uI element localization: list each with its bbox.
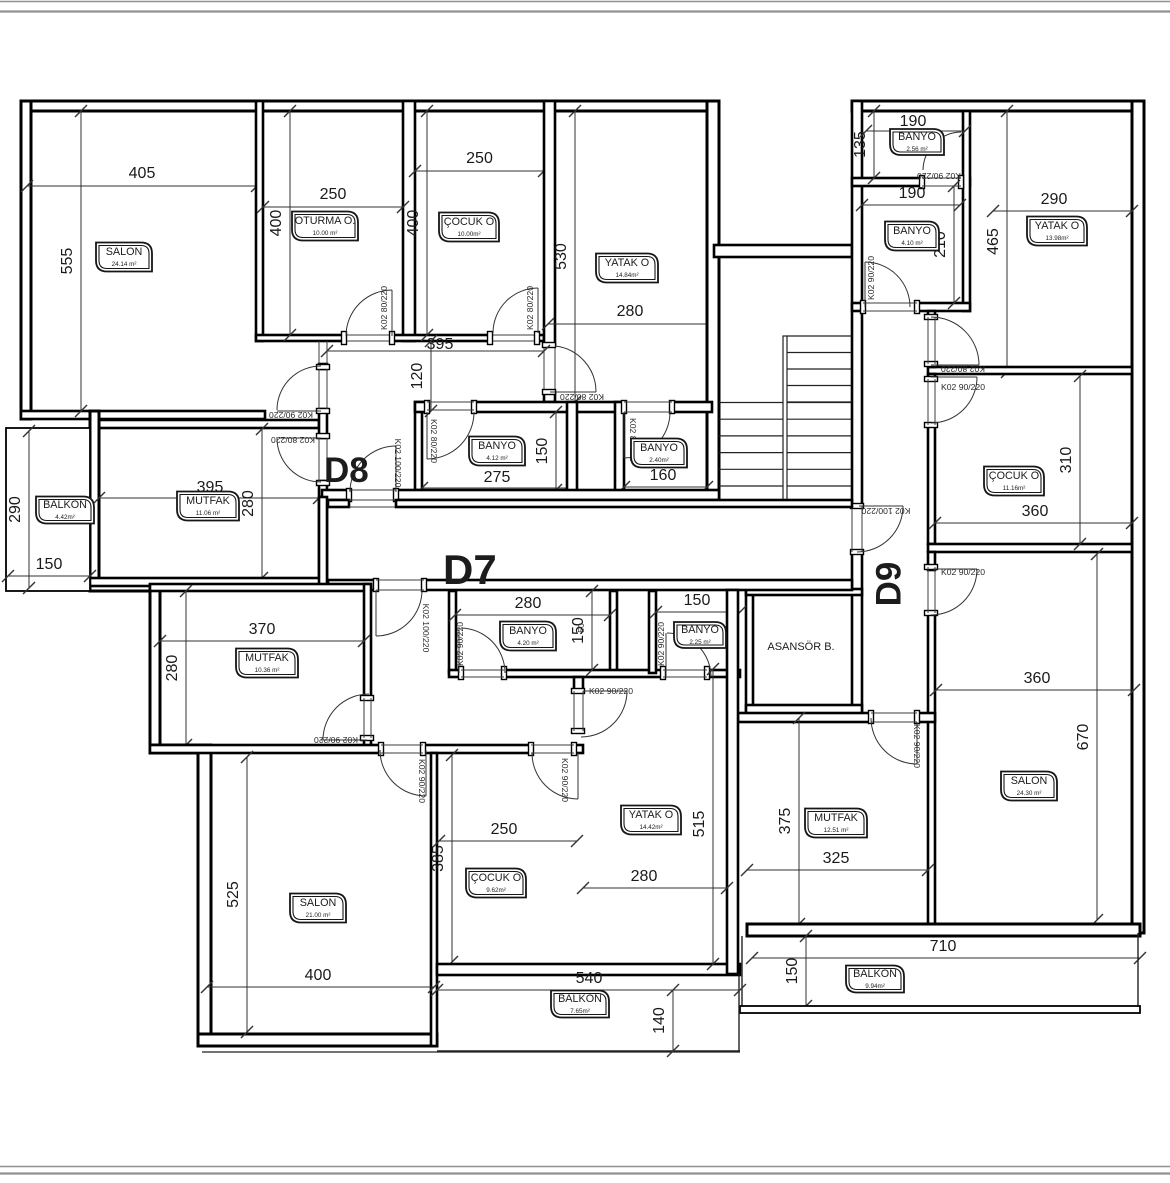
svg-text:135: 135 xyxy=(852,131,869,158)
svg-text:11.16m²: 11.16m² xyxy=(1003,485,1026,492)
svg-text:9.62m²: 9.62m² xyxy=(486,887,506,894)
svg-text:K02 90/220: K02 90/220 xyxy=(314,735,358,745)
svg-text:4.12 m²: 4.12 m² xyxy=(486,455,507,462)
svg-text:SALON: SALON xyxy=(300,897,337,909)
svg-text:160: 160 xyxy=(650,467,677,484)
svg-text:4.42m²: 4.42m² xyxy=(55,514,75,521)
svg-text:465: 465 xyxy=(985,228,1002,255)
svg-text:OTURMA O.: OTURMA O. xyxy=(295,215,356,227)
svg-text:K02 80/220: K02 80/220 xyxy=(271,435,315,445)
svg-text:50: 50 xyxy=(576,623,586,633)
svg-text:10.36 m²: 10.36 m² xyxy=(255,667,280,674)
svg-text:K02 100/220: K02 100/220 xyxy=(421,604,431,653)
svg-text:370: 370 xyxy=(249,621,276,638)
svg-text:K02 90/220: K02 90/220 xyxy=(941,567,985,577)
svg-text:400: 400 xyxy=(268,210,285,237)
svg-text:MUTFAK: MUTFAK xyxy=(814,812,859,824)
svg-text:670: 670 xyxy=(1075,724,1092,751)
svg-text:K02 90/220: K02 90/220 xyxy=(560,758,570,802)
svg-text:4.10 m²: 4.10 m² xyxy=(901,240,922,247)
svg-text:24.30 m²: 24.30 m² xyxy=(1017,790,1042,797)
svg-text:150: 150 xyxy=(684,592,711,609)
svg-text:250: 250 xyxy=(320,186,347,203)
svg-text:K02 90/220: K02 90/220 xyxy=(455,622,465,666)
svg-text:D7: D7 xyxy=(443,546,497,593)
svg-text:BALKON: BALKON xyxy=(43,499,87,511)
svg-text:7.65m²: 7.65m² xyxy=(570,1008,590,1015)
svg-text:K02 80/220: K02 80/220 xyxy=(525,286,535,330)
svg-text:400: 400 xyxy=(305,967,332,984)
svg-text:310: 310 xyxy=(1058,447,1075,474)
svg-text:2.25 m²: 2.25 m² xyxy=(689,639,710,646)
svg-text:BALKON: BALKON xyxy=(853,968,897,980)
svg-text:385: 385 xyxy=(430,845,447,872)
svg-text:MUTFAK: MUTFAK xyxy=(186,495,231,507)
svg-text:BANYO: BANYO xyxy=(893,225,931,237)
svg-text:360: 360 xyxy=(1022,503,1049,520)
svg-text:400: 400 xyxy=(405,210,422,237)
svg-text:12.51 m²: 12.51 m² xyxy=(824,827,849,834)
svg-text:190: 190 xyxy=(900,113,927,130)
svg-text:120: 120 xyxy=(409,363,426,390)
svg-text:13.98m²: 13.98m² xyxy=(1045,235,1068,242)
svg-text:BANYO: BANYO xyxy=(478,440,516,452)
svg-text:290: 290 xyxy=(1041,191,1068,208)
svg-text:2.40m²: 2.40m² xyxy=(649,457,669,464)
svg-text:10.00m²: 10.00m² xyxy=(457,231,480,238)
svg-text:4.20 m²: 4.20 m² xyxy=(517,640,538,647)
svg-text:150: 150 xyxy=(534,438,551,465)
svg-text:YATAK O: YATAK O xyxy=(605,257,649,269)
svg-text:K02 80/220: K02 80/220 xyxy=(560,392,604,402)
svg-text:K02 90/220: K02 90/220 xyxy=(866,256,876,300)
svg-text:SALON: SALON xyxy=(1011,775,1048,787)
svg-text:280: 280 xyxy=(617,303,644,320)
svg-text:540: 540 xyxy=(576,970,603,987)
svg-text:K02 90/220: K02 90/220 xyxy=(941,382,985,392)
svg-text:D8: D8 xyxy=(324,451,369,490)
svg-text:530: 530 xyxy=(553,243,570,270)
svg-text:280: 280 xyxy=(164,655,181,682)
svg-text:710: 710 xyxy=(930,938,957,955)
svg-text:ÇOCUK O: ÇOCUK O xyxy=(471,872,521,884)
svg-text:21.00 m²: 21.00 m² xyxy=(306,912,331,919)
svg-text:K02 80/220: K02 80/220 xyxy=(429,419,439,463)
svg-text:280: 280 xyxy=(515,595,542,612)
svg-text:YATAK O: YATAK O xyxy=(1035,220,1079,232)
svg-text:150: 150 xyxy=(36,556,63,573)
svg-text:K02 90/220: K02 90/220 xyxy=(656,622,666,666)
svg-text:SALON: SALON xyxy=(106,246,143,258)
svg-text:K02 90/220: K02 90/220 xyxy=(417,759,427,803)
svg-text:ÇOCUK O: ÇOCUK O xyxy=(989,470,1039,482)
svg-text:325: 325 xyxy=(823,850,850,867)
svg-text:D9: D9 xyxy=(870,562,909,607)
svg-text:ÇOCUK O: ÇOCUK O xyxy=(444,216,494,228)
svg-text:11.06 m²: 11.06 m² xyxy=(196,510,220,517)
svg-text:140: 140 xyxy=(651,1007,668,1034)
svg-text:9.94m²: 9.94m² xyxy=(865,983,885,990)
svg-text:280: 280 xyxy=(631,868,658,885)
svg-text:515: 515 xyxy=(691,811,708,838)
svg-text:K02 80/220: K02 80/220 xyxy=(379,286,389,330)
svg-text:2.56 m²: 2.56 m² xyxy=(906,146,927,153)
svg-text:BANYO: BANYO xyxy=(509,625,547,637)
svg-text:BANYO: BANYO xyxy=(681,624,719,636)
svg-text:10.00 m²: 10.00 m² xyxy=(313,230,338,237)
svg-text:YATAK O: YATAK O xyxy=(629,809,673,821)
svg-text:150: 150 xyxy=(784,958,801,985)
svg-text:280: 280 xyxy=(240,490,257,517)
svg-text:BANYO: BANYO xyxy=(898,131,936,143)
svg-text:BANYO: BANYO xyxy=(640,442,678,454)
svg-text:375: 375 xyxy=(777,808,794,835)
svg-text:360: 360 xyxy=(1024,670,1051,687)
svg-text:K02 90/220: K02 90/220 xyxy=(917,171,961,181)
svg-text:14.42m²: 14.42m² xyxy=(639,824,662,831)
svg-text:K02 90/220: K02 90/220 xyxy=(912,724,922,768)
svg-text:190: 190 xyxy=(899,185,926,202)
svg-text:K02 100/220: K02 100/220 xyxy=(393,439,403,488)
svg-text:K02 80/220: K02 80/220 xyxy=(941,364,985,374)
svg-text:K02 90/220: K02 90/220 xyxy=(589,686,633,696)
svg-text:250: 250 xyxy=(466,150,493,167)
svg-text:BALKON: BALKON xyxy=(558,993,602,1005)
svg-text:555: 555 xyxy=(59,248,76,275)
svg-text:250: 250 xyxy=(491,821,518,838)
svg-text:14.84m²: 14.84m² xyxy=(615,272,638,279)
svg-text:405: 405 xyxy=(129,165,156,182)
svg-text:K02 90/220: K02 90/220 xyxy=(269,410,313,420)
svg-text:ASANSÖR B.: ASANSÖR B. xyxy=(767,641,834,653)
svg-text:K02 100/220: K02 100/220 xyxy=(861,506,910,516)
svg-text:275: 275 xyxy=(484,469,511,486)
svg-text:290: 290 xyxy=(7,496,24,523)
svg-text:24.14 m²: 24.14 m² xyxy=(112,261,137,268)
svg-text:MUTFAK: MUTFAK xyxy=(245,652,290,664)
svg-text:525: 525 xyxy=(225,881,242,908)
